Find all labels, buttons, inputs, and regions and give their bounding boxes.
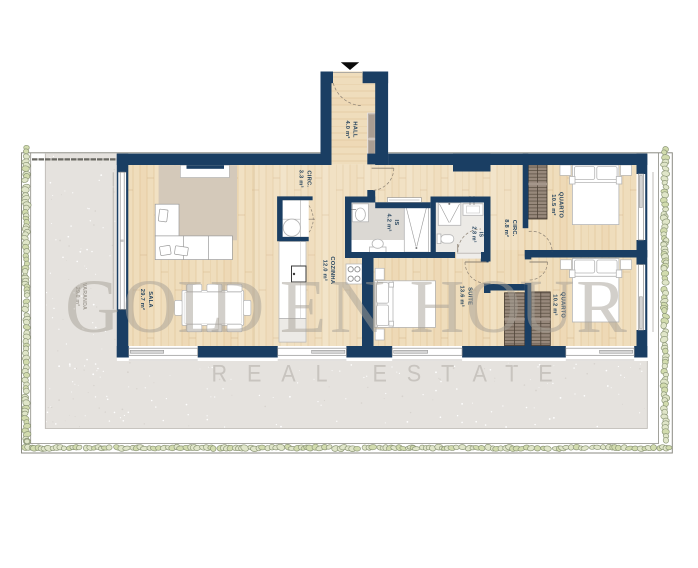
svg-text:2.8 m²: 2.8 m² — [471, 226, 477, 242]
svg-text:8.8 m²: 8.8 m² — [503, 219, 510, 237]
svg-text:O: O — [466, 265, 521, 349]
svg-text:R: R — [576, 265, 627, 349]
svg-text:O: O — [123, 265, 178, 349]
svg-text:IS: IS — [478, 232, 484, 238]
svg-text:D: D — [210, 265, 265, 349]
svg-text:HALL: HALL — [352, 121, 358, 138]
svg-text:QUARTO: QUARTO — [558, 192, 564, 219]
svg-text:3.3 m²: 3.3 m² — [297, 170, 304, 188]
svg-text:4.2 m²: 4.2 m² — [385, 214, 392, 232]
svg-text:E: E — [280, 265, 326, 349]
svg-text:4.0 m²: 4.0 m² — [344, 121, 351, 139]
svg-text:REAL ESTATE: REAL ESTATE — [212, 361, 573, 388]
svg-text:U: U — [520, 265, 575, 349]
svg-text:CIRC.: CIRC. — [511, 220, 517, 237]
svg-text:IS: IS — [393, 220, 399, 226]
svg-text:G: G — [65, 265, 120, 349]
svg-text:N: N — [330, 265, 385, 349]
svg-text:10.5 m²: 10.5 m² — [550, 194, 557, 215]
svg-text:H: H — [410, 265, 465, 349]
svg-text:CIRC.: CIRC. — [305, 170, 311, 187]
